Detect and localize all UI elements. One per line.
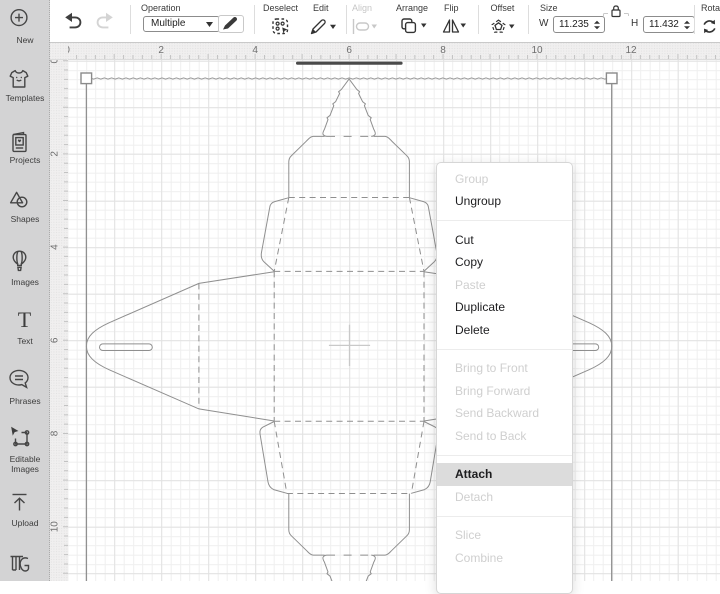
svg-text:10: 10 <box>531 45 543 56</box>
svg-text:2: 2 <box>158 45 164 56</box>
svg-text:8: 8 <box>50 430 61 436</box>
svg-text:4: 4 <box>50 244 61 250</box>
svg-text:6: 6 <box>346 45 352 56</box>
svg-text:12: 12 <box>625 45 637 56</box>
svg-text:4: 4 <box>252 45 258 56</box>
svg-text:8: 8 <box>440 45 446 56</box>
